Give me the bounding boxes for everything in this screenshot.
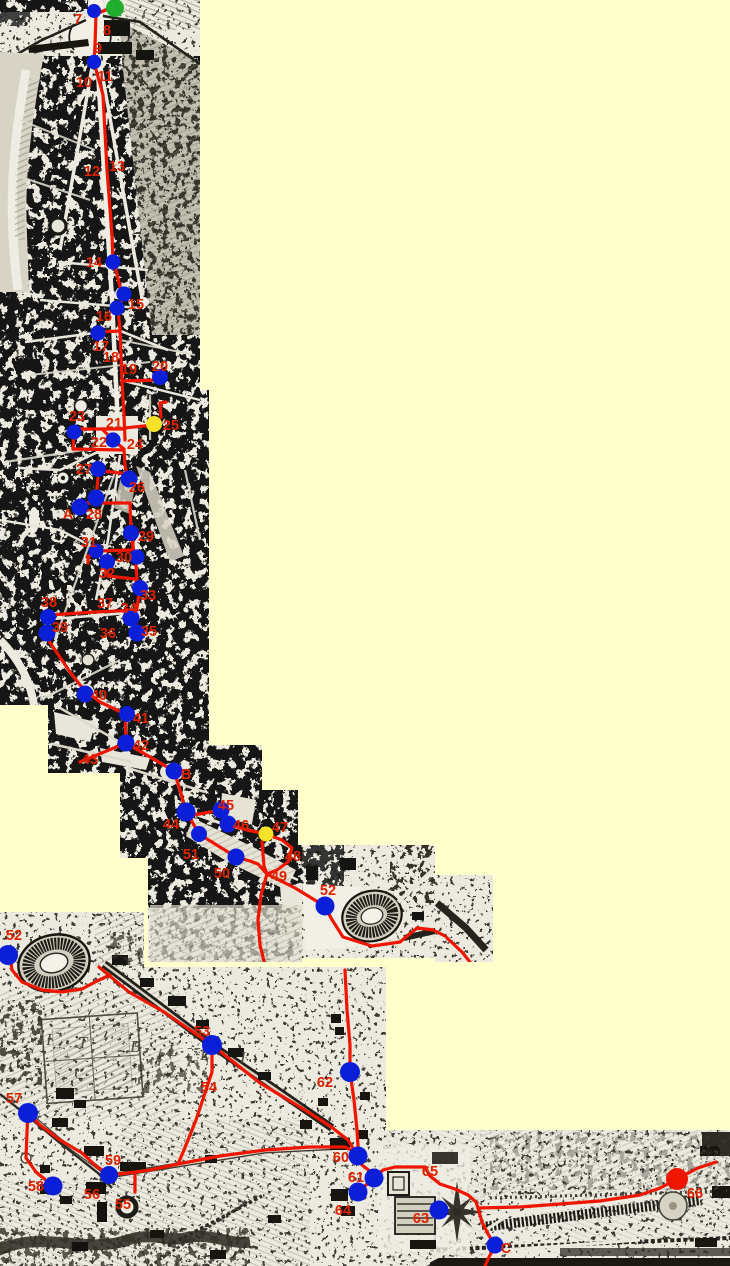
svg-text:64: 64 (335, 1203, 351, 1219)
svg-text:10: 10 (76, 75, 92, 91)
svg-text:65: 65 (422, 1164, 438, 1180)
svg-text:40: 40 (91, 688, 107, 704)
svg-text:25: 25 (163, 418, 179, 434)
svg-text:49: 49 (271, 869, 287, 885)
svg-text:14: 14 (86, 255, 102, 271)
svg-text:45: 45 (218, 798, 234, 814)
svg-text:13: 13 (109, 159, 125, 175)
svg-text:21: 21 (106, 416, 122, 432)
svg-text:60: 60 (333, 1150, 349, 1166)
svg-text:19: 19 (121, 362, 137, 378)
svg-text:20: 20 (152, 359, 168, 375)
svg-text:48: 48 (285, 849, 301, 865)
svg-text:53: 53 (194, 1024, 210, 1040)
svg-text:8: 8 (103, 23, 111, 39)
svg-text:A: A (63, 507, 74, 523)
svg-text:34: 34 (121, 601, 137, 617)
svg-text:32: 32 (99, 566, 115, 582)
svg-text:16: 16 (96, 309, 112, 325)
svg-text:23: 23 (69, 409, 85, 425)
svg-text:B: B (130, 1037, 141, 1056)
svg-text:43: 43 (82, 752, 98, 768)
svg-text:31: 31 (81, 535, 97, 551)
svg-text:63: 63 (413, 1211, 429, 1227)
svg-text:12: 12 (84, 164, 100, 180)
svg-text:11: 11 (97, 69, 112, 85)
svg-text:29: 29 (138, 529, 154, 545)
svg-text:28: 28 (86, 507, 102, 523)
svg-text:55: 55 (115, 1197, 131, 1213)
svg-text:46: 46 (233, 818, 249, 834)
svg-text:26: 26 (129, 480, 145, 496)
svg-text:66: 66 (687, 1186, 703, 1202)
svg-text:T: T (78, 1033, 89, 1052)
svg-text:30: 30 (116, 550, 132, 566)
svg-text:61: 61 (348, 1170, 364, 1186)
svg-text:C: C (501, 1241, 512, 1257)
svg-text:44: 44 (163, 817, 179, 833)
svg-text:42: 42 (133, 738, 149, 754)
svg-text:L: L (167, 1041, 177, 1060)
svg-text:56: 56 (84, 1187, 100, 1203)
svg-text:54: 54 (201, 1080, 217, 1096)
svg-text:27: 27 (76, 462, 92, 478)
svg-text:P: P (11, 1025, 22, 1044)
svg-text:52: 52 (6, 928, 22, 944)
svg-text:38: 38 (41, 595, 57, 611)
svg-text:9: 9 (94, 41, 102, 57)
svg-text:37: 37 (97, 596, 113, 612)
svg-text:51: 51 (183, 847, 199, 863)
svg-text:39: 39 (52, 620, 68, 636)
svg-text:52: 52 (320, 883, 336, 899)
svg-text:18: 18 (103, 350, 119, 366)
svg-text:47: 47 (272, 820, 288, 836)
svg-text:22: 22 (91, 435, 107, 451)
svg-text:36: 36 (100, 626, 116, 642)
svg-text:50: 50 (214, 866, 230, 882)
svg-text:B: B (181, 767, 191, 783)
svg-text:33: 33 (140, 588, 156, 604)
svg-text:15: 15 (128, 297, 144, 313)
svg-text:57: 57 (6, 1091, 22, 1107)
svg-text:24: 24 (127, 437, 143, 453)
svg-text:62: 62 (317, 1075, 333, 1091)
svg-text:7: 7 (74, 12, 82, 28)
svg-text:59: 59 (105, 1153, 121, 1169)
svg-text:58: 58 (28, 1179, 44, 1195)
svg-text:35: 35 (141, 624, 157, 640)
svg-text:41: 41 (133, 711, 149, 727)
